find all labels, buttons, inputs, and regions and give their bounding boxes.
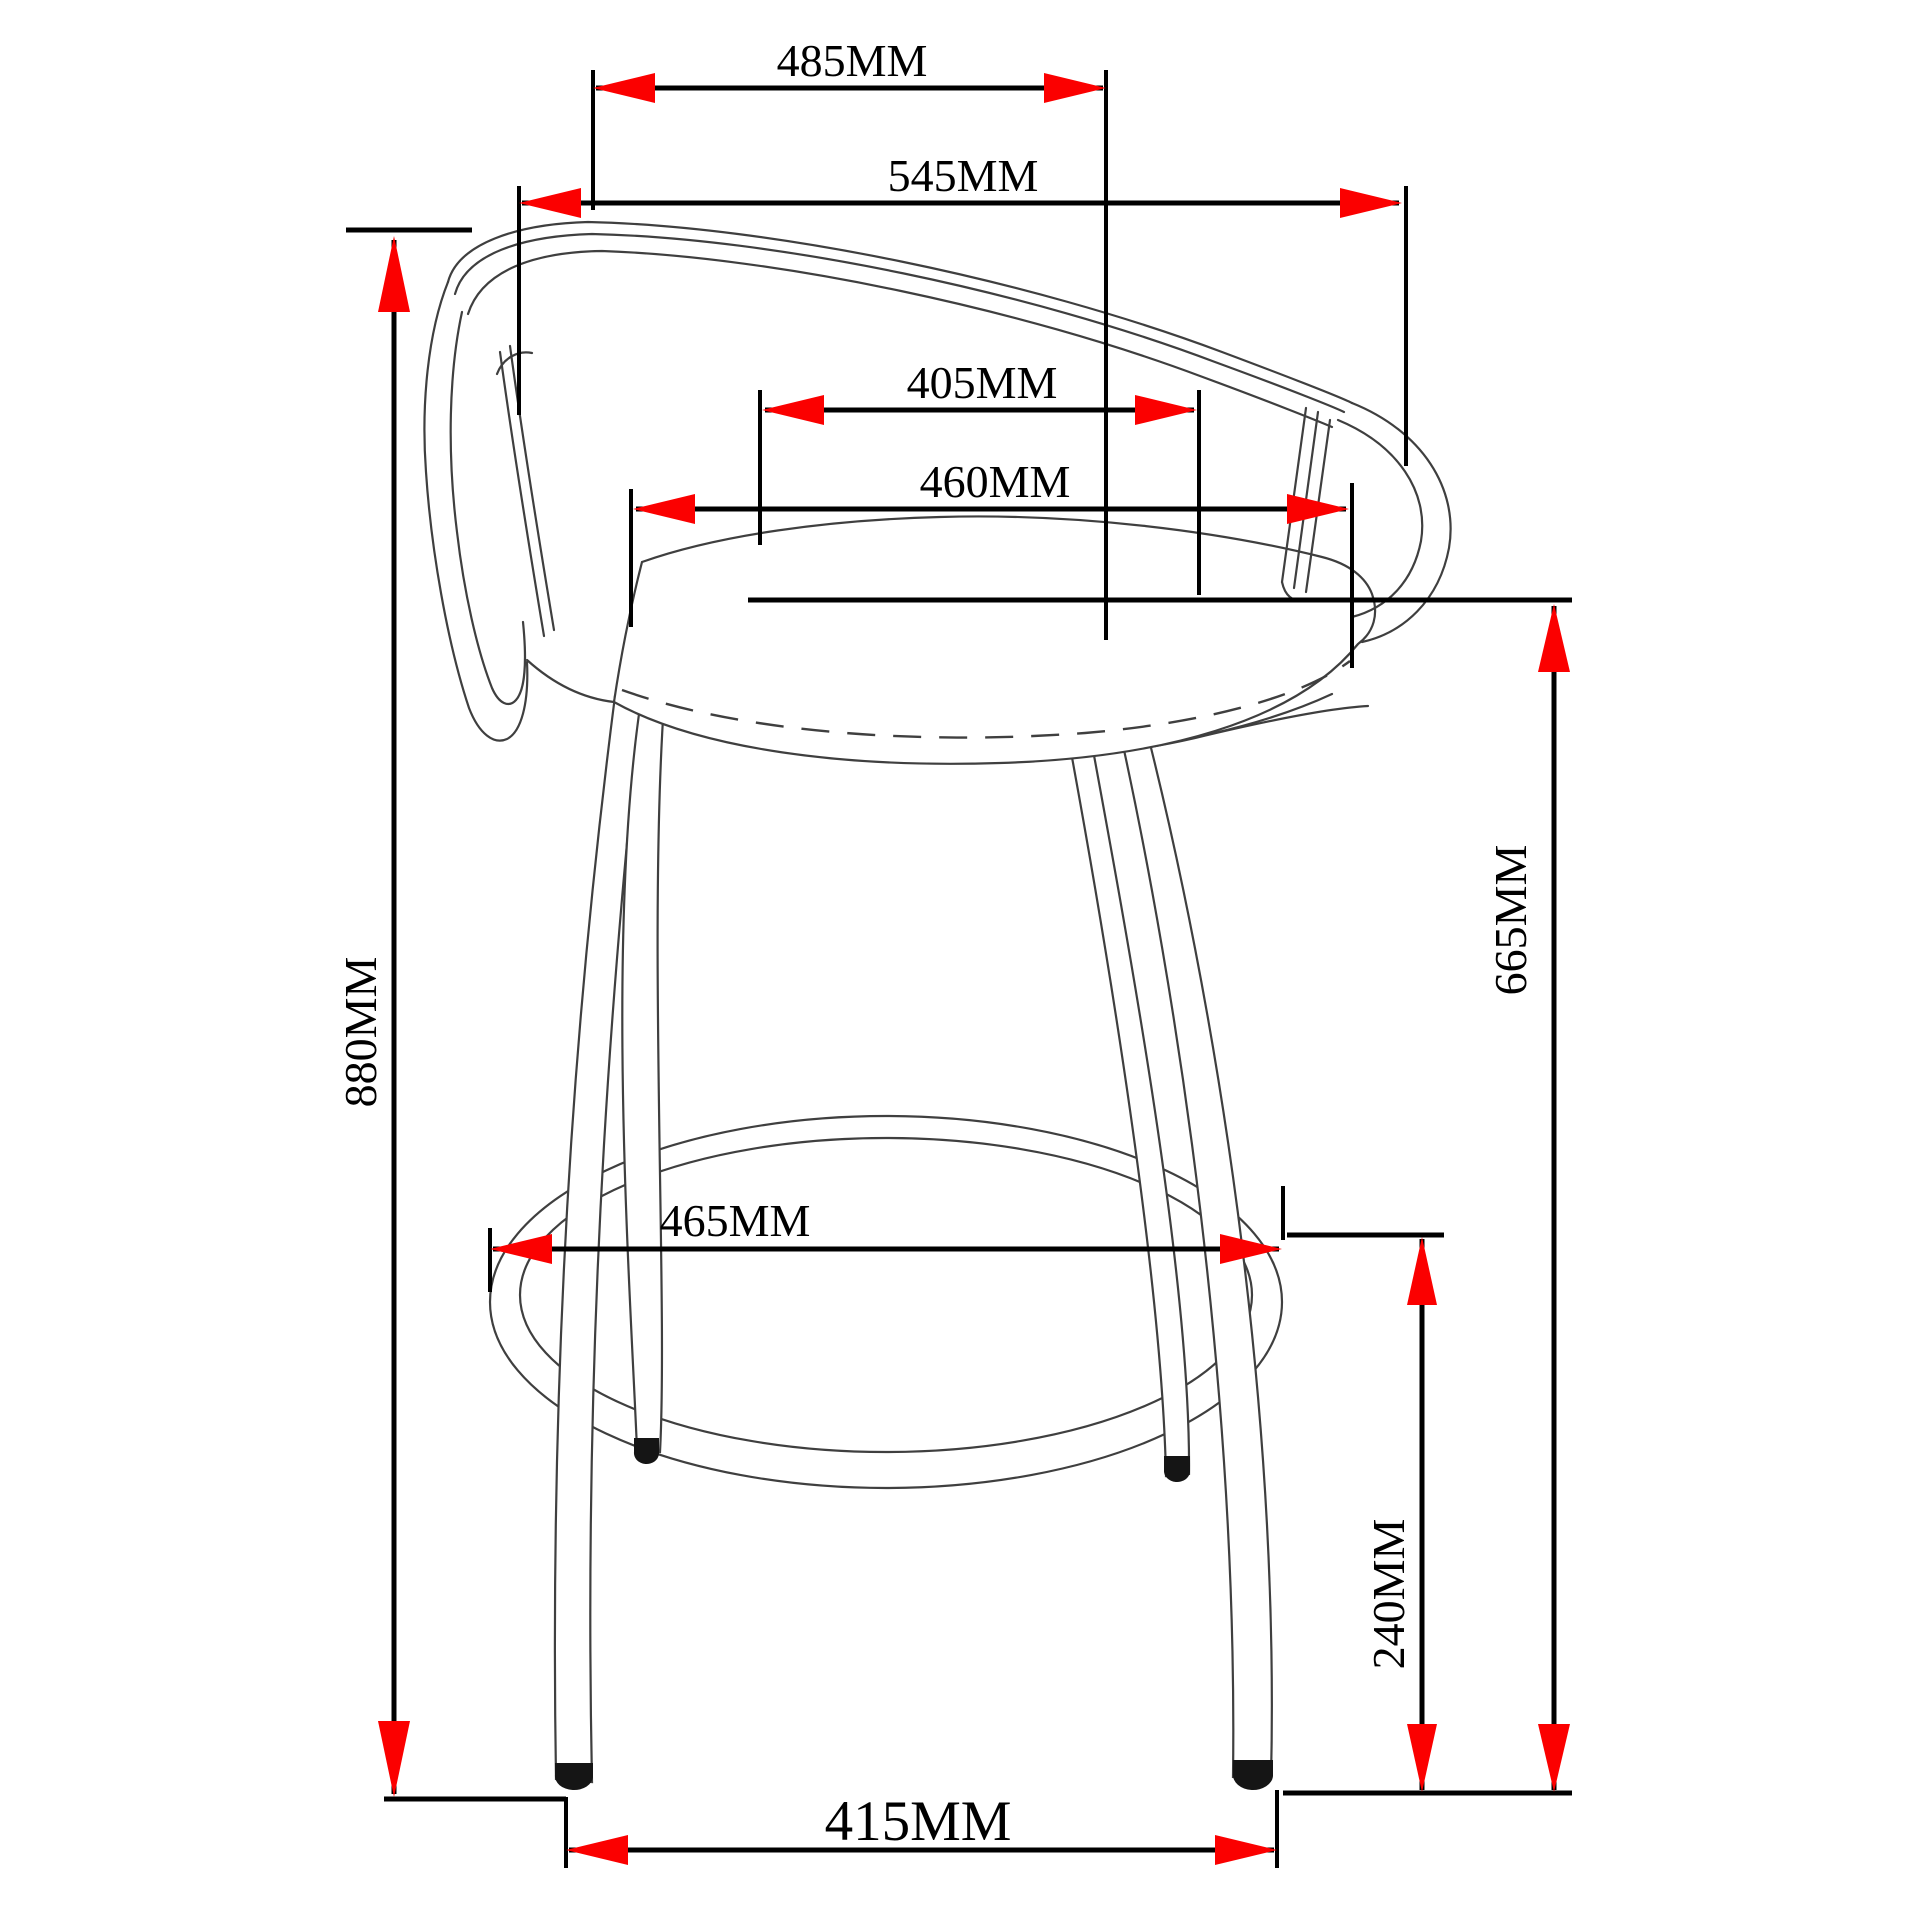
arrowhead-left-icon <box>519 188 581 218</box>
foot-cap-rear-left <box>634 1438 659 1464</box>
arrowhead-right-icon <box>1340 188 1402 218</box>
arrowhead-down-icon <box>1538 1724 1570 1792</box>
dim-label-880: 880MM <box>335 957 386 1108</box>
dimension-240: 240MM <box>1287 1235 1444 1792</box>
arrowhead-left-icon <box>566 1835 628 1865</box>
arrowhead-down-icon <box>378 1721 410 1797</box>
arrowhead-right-icon <box>1215 1835 1277 1865</box>
dimension-415: 415MM <box>566 1790 1277 1868</box>
dim-label-405: 405MM <box>907 357 1058 408</box>
foot-cap-front-right <box>1233 1760 1273 1790</box>
foot-cap-front-left <box>555 1763 593 1790</box>
dimension-annotations: 485MM 545MM 405MM 460MM <box>335 35 1572 1868</box>
backrest-inner-edge <box>468 251 1332 427</box>
dim-label-665: 665MM <box>1485 845 1536 996</box>
arrowhead-down-icon <box>1407 1724 1437 1792</box>
foot-cap-rear-right <box>1164 1456 1190 1482</box>
dim-label-240: 240MM <box>1363 1519 1414 1670</box>
dim-label-465: 465MM <box>660 1195 811 1246</box>
arrowhead-up-icon <box>378 236 410 312</box>
side-panel-fold-1 <box>500 352 544 636</box>
dim-label-415: 415MM <box>825 1790 1012 1853</box>
arrowhead-left-icon <box>593 73 655 103</box>
backrest-outer-edge <box>448 222 1352 403</box>
arrowhead-left-icon <box>633 494 695 524</box>
dimension-545: 545MM <box>519 150 1406 466</box>
foot-caps <box>555 1438 1273 1790</box>
dim-label-485: 485MM <box>777 35 928 86</box>
dim-label-460: 460MM <box>920 456 1071 507</box>
arrowhead-right-icon <box>1135 395 1197 425</box>
arrowhead-left-icon <box>762 395 824 425</box>
side-panel-fold-2 <box>510 346 554 630</box>
dim-label-545: 545MM <box>888 150 1039 201</box>
side-panel-outer <box>424 282 527 741</box>
backrest <box>448 222 1352 427</box>
technical-drawing-canvas: 485MM 545MM 405MM 460MM <box>0 0 1920 1920</box>
seat <box>614 516 1375 763</box>
leg-rear-left <box>622 700 664 1452</box>
arrowhead-up-icon <box>1538 604 1570 672</box>
arrowhead-right-icon <box>1044 73 1106 103</box>
arrowhead-up-icon <box>1407 1237 1437 1305</box>
side-panel-to-seat <box>527 660 614 702</box>
seat-outline <box>614 516 1375 763</box>
bar-stool-dimension-drawing: 485MM 545MM 405MM 460MM <box>0 0 1920 1920</box>
